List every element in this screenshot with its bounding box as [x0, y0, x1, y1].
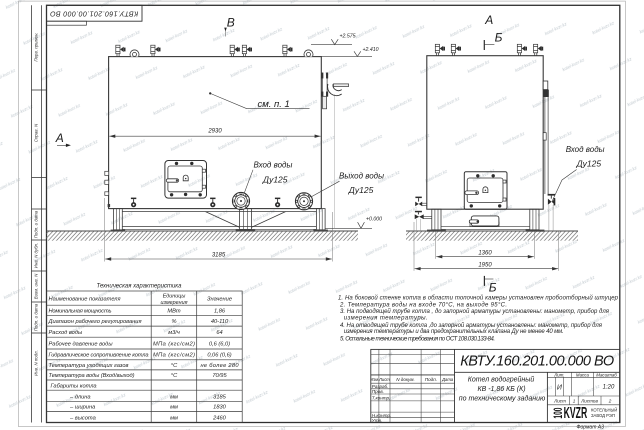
svg-text:Справ. N: Справ. N — [34, 123, 39, 142]
svg-text:40-110: 40-110 — [211, 319, 229, 325]
svg-text:Лист: Лист — [553, 398, 566, 403]
svg-text:Перв. примен.: Перв. примен. — [34, 32, 39, 61]
svg-text:Изм.: Изм. — [370, 377, 379, 382]
svg-text:Значение: Значение — [207, 297, 232, 303]
svg-text:А: А — [55, 131, 64, 145]
svg-text:64: 64 — [216, 330, 222, 336]
svg-text:+2.410: +2.410 — [363, 47, 379, 53]
svg-text:1360: 1360 — [478, 250, 492, 256]
svg-text:Лит.: Лит. — [553, 372, 564, 377]
svg-text:см. п. 1: см. п. 1 — [258, 99, 290, 110]
svg-text:м3/ч: м3/ч — [168, 330, 180, 336]
svg-text:Б: Б — [495, 31, 503, 45]
svg-text:+2.575: +2.575 — [340, 34, 356, 40]
svg-text:Единицы: Единицы — [163, 294, 186, 300]
svg-text:Наименование показателя: Наименование показателя — [49, 296, 121, 302]
svg-text:Подп. и дата: Подп. и дата — [34, 210, 39, 238]
svg-text:Лист: Лист — [378, 377, 390, 382]
svg-text:КВТУ.160.201.00.000 ВО: КВТУ.160.201.00.000 ВО — [460, 354, 614, 370]
svg-text:KVZR: KVZR — [564, 404, 588, 421]
svg-text:2460: 2460 — [212, 416, 226, 422]
svg-text:– ширина: – ширина — [69, 405, 95, 411]
svg-text:Подп.: Подп. — [425, 377, 437, 382]
svg-text:N докум.: N докум. — [396, 377, 415, 382]
svg-text:Температура уходящих газов: Температура уходящих газов — [49, 363, 129, 369]
svg-text:1: 1 — [573, 398, 576, 403]
svg-text:Ду125: Ду125 — [576, 159, 602, 169]
svg-text:+0.000: +0.000 — [366, 217, 382, 223]
svg-text:Утв.: Утв. — [372, 418, 382, 423]
svg-text:Выход воды: Выход воды — [339, 171, 384, 180]
svg-text:Гидравлическое сопротивление к: Гидравлическое сопротивление котла — [49, 353, 149, 359]
svg-text:Подп. и дата: Подп. и дата — [34, 303, 39, 331]
svg-text:Температура воды (Вход/выход): Температура воды (Вход/выход) — [49, 373, 135, 379]
svg-text:Ду125: Ду125 — [262, 174, 288, 184]
svg-text:Инв. N подл.: Инв. N подл. — [34, 350, 39, 376]
svg-text:КОТЕЛЬНЫЙ: КОТЕЛЬНЫЙ — [591, 407, 617, 412]
svg-text:70/95: 70/95 — [212, 373, 227, 379]
svg-text:Т.контр.: Т.контр. — [372, 396, 391, 401]
svg-text:по техническому заданию: по техническому заданию — [459, 394, 546, 402]
svg-text:°С: °С — [171, 373, 178, 379]
svg-text:Вход воды: Вход воды — [566, 145, 605, 154]
svg-text:Листов: Листов — [580, 398, 598, 403]
svg-text:КВТУ.160.201.00.000 ВО: КВТУ.160.201.00.000 ВО — [50, 9, 139, 16]
svg-text:ЗАВОД РЭП: ЗАВОД РЭП — [591, 413, 615, 418]
svg-text:В: В — [227, 16, 235, 30]
svg-text:%: % — [171, 319, 176, 325]
svg-text:Масштаб: Масштаб — [596, 372, 617, 377]
svg-text:Диапазон рабочего регулировани: Диапазон рабочего регулирования — [48, 319, 142, 325]
svg-text:4. На отводящей трубе котла ,: 4. На отводящей трубе котла ,до запорной… — [340, 322, 603, 329]
svg-text:Дата: Дата — [441, 377, 454, 382]
svg-text:5. Остальные технические треб: 5. Остальные технические требования по О… — [340, 337, 495, 343]
svg-text:измерения температуры.: измерения температуры. — [344, 316, 428, 322]
svg-text:3185: 3185 — [212, 253, 226, 259]
svg-text:мм: мм — [170, 416, 178, 422]
svg-text:Инв. N дубл.: Инв. N дубл. — [34, 243, 39, 268]
svg-text:1,86: 1,86 — [214, 309, 226, 315]
svg-text:Вход воды: Вход воды — [254, 161, 293, 170]
svg-text:мм: мм — [170, 395, 178, 401]
svg-text:0,6 (6,0): 0,6 (6,0) — [209, 341, 230, 347]
svg-text:Расход воды: Расход воды — [49, 330, 83, 336]
svg-text:Котел водогрейный: Котел водогрейный — [468, 375, 535, 383]
svg-text:МВт: МВт — [167, 309, 181, 315]
svg-text:1830: 1830 — [213, 405, 226, 411]
svg-text:Б: Б — [489, 280, 497, 294]
svg-text:Пров.: Пров. — [372, 389, 384, 394]
svg-text:°С: °С — [171, 363, 178, 369]
svg-text:– длина: – длина — [69, 395, 91, 401]
svg-text:3185: 3185 — [213, 395, 226, 401]
svg-text:Формат А3: Формат А3 — [577, 425, 605, 430]
svg-text:2: 2 — [608, 398, 612, 403]
svg-text:А: А — [484, 13, 493, 27]
svg-text:Масса: Масса — [576, 372, 590, 377]
svg-text:Рабочее давление воды: Рабочее давление воды — [49, 341, 114, 347]
svg-text:2930: 2930 — [207, 129, 222, 135]
svg-text:100: 100 — [553, 408, 565, 419]
svg-text:– высота: – высота — [69, 416, 96, 422]
svg-text:1950: 1950 — [478, 262, 492, 268]
svg-text:Взам. инв. N: Взам. инв. N — [34, 273, 39, 299]
svg-text:МПа (кгс/см2): МПа (кгс/см2) — [153, 341, 195, 347]
svg-text:измерения температуры и два пр: измерения температуры и два предохраните… — [344, 329, 564, 335]
svg-text:1:20: 1:20 — [603, 385, 615, 391]
svg-text:не более 280: не более 280 — [201, 363, 240, 369]
svg-text:КВ -1,86 КБ (К): КВ -1,86 КБ (К) — [477, 386, 525, 393]
svg-text:Ду125: Ду125 — [348, 185, 374, 195]
svg-text:измерения: измерения — [161, 300, 188, 306]
svg-text:Габариты котла: Габариты котла — [51, 383, 97, 389]
svg-text:мм: мм — [170, 405, 178, 411]
svg-text:0,06 (0,6): 0,06 (0,6) — [207, 353, 231, 359]
svg-text:Разраб.: Разраб. — [372, 384, 389, 389]
svg-text:1. На боковой стенке котла в: 1. На боковой стенке котла в области топ… — [338, 295, 619, 302]
svg-text:2. Температура воды на входе: 2. Температура воды на входе 70°С, на вы… — [339, 302, 507, 308]
svg-text:Техническая характеристика: Техническая характеристика — [97, 284, 183, 290]
svg-text:МПа (кгс/см2): МПа (кгс/см2) — [153, 353, 195, 359]
svg-text:3. На подводящей трубе котла: 3. На подводящей трубе котла , до запорн… — [340, 308, 610, 315]
svg-text:Номинальная мощность: Номинальная мощность — [49, 309, 112, 315]
